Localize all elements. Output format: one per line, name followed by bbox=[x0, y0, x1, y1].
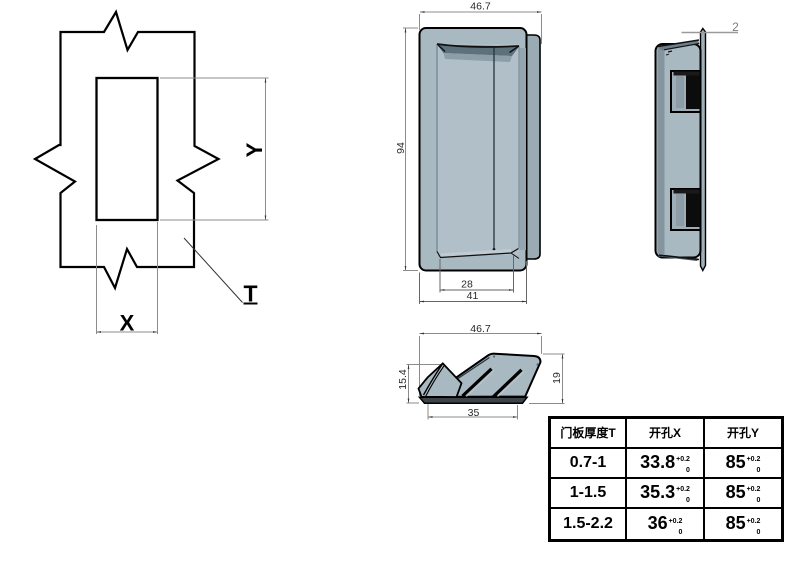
svg-text:19: 19 bbox=[551, 372, 563, 384]
svg-text:15.4: 15.4 bbox=[397, 369, 409, 390]
svg-text:46.7: 46.7 bbox=[470, 323, 491, 335]
svg-text:X: X bbox=[120, 311, 135, 336]
svg-text:28: 28 bbox=[461, 279, 473, 291]
svg-text:94: 94 bbox=[395, 142, 407, 154]
svg-text:41: 41 bbox=[467, 290, 479, 302]
svg-text:2: 2 bbox=[732, 20, 739, 34]
svg-text:35: 35 bbox=[468, 407, 480, 419]
svg-text:46.7: 46.7 bbox=[470, 1, 491, 13]
svg-text:Y: Y bbox=[242, 142, 267, 157]
